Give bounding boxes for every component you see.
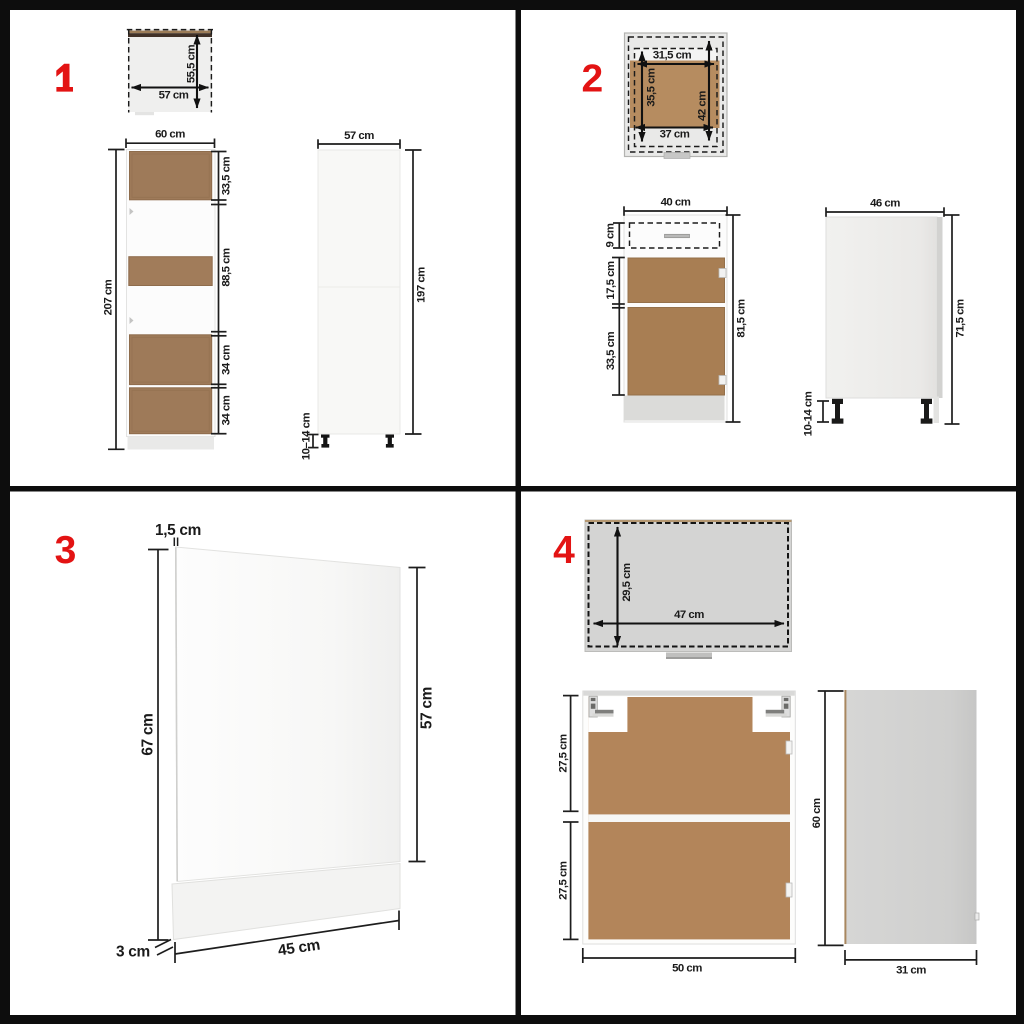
svg-text:46 cm: 46 cm [870,198,900,210]
svg-text:67 cm: 67 cm [140,713,157,755]
svg-text:57 cm: 57 cm [419,687,436,729]
svg-text:57 cm: 57 cm [344,130,374,142]
svg-text:88,5 cm: 88,5 cm [221,248,233,287]
svg-text:37 cm: 37 cm [660,129,690,141]
svg-text:60 cm: 60 cm [811,798,823,828]
svg-text:81,5 cm: 81,5 cm [736,299,748,338]
svg-text:4: 4 [553,529,575,572]
svg-text:47 cm: 47 cm [674,609,704,621]
svg-text:55,5 cm: 55,5 cm [186,44,198,83]
svg-text:40 cm: 40 cm [661,197,691,209]
svg-text:50 cm: 50 cm [672,963,702,975]
svg-text:71,5 cm: 71,5 cm [955,299,967,338]
svg-text:27,5 cm: 27,5 cm [558,734,570,773]
svg-text:60 cm: 60 cm [155,129,185,141]
svg-text:33,5 cm: 33,5 cm [605,331,617,370]
svg-text:10–14 cm: 10–14 cm [301,412,313,460]
svg-text:2: 2 [581,58,603,101]
svg-text:29,5 cm: 29,5 cm [621,563,633,602]
svg-text:57 cm: 57 cm [159,90,189,102]
svg-text:34 cm: 34 cm [221,345,233,375]
svg-text:207 cm: 207 cm [103,279,115,315]
svg-text:10-14 cm: 10-14 cm [803,391,815,436]
svg-text:3: 3 [55,529,77,572]
svg-text:27,5 cm: 27,5 cm [558,861,570,900]
svg-text:3 cm: 3 cm [116,944,150,961]
svg-text:42 cm: 42 cm [697,91,709,121]
svg-text:17,5 cm: 17,5 cm [605,261,617,300]
svg-text:35,5 cm: 35,5 cm [646,68,658,107]
svg-text:33,5 cm: 33,5 cm [221,156,233,195]
svg-text:197 cm: 197 cm [416,267,428,303]
svg-text:34 cm: 34 cm [221,395,233,425]
svg-text:9 cm: 9 cm [605,223,617,247]
svg-text:31,5 cm: 31,5 cm [653,50,692,62]
svg-text:1,5 cm: 1,5 cm [155,522,201,539]
svg-text:31 cm: 31 cm [896,965,926,977]
